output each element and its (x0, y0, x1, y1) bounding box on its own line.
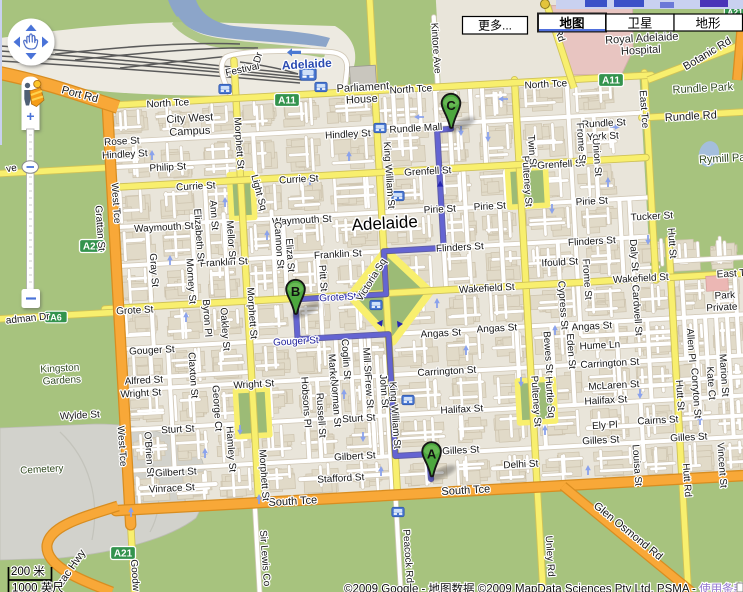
svg-text:Gardens: Gardens (42, 374, 81, 387)
svg-text:Currie St: Currie St (176, 180, 216, 193)
svg-text:Rose St: Rose St (104, 135, 140, 148)
svg-text:Ann St: Ann St (207, 200, 220, 231)
svg-text:Allen Pl: Allen Pl (684, 328, 697, 363)
svg-text:Pitt St: Pitt St (316, 265, 329, 293)
svg-text:卫星: 卫星 (627, 17, 652, 31)
svg-text:Angas St: Angas St (420, 327, 461, 340)
svg-text:Angas St: Angas St (571, 320, 612, 333)
svg-text:B: B (291, 284, 300, 299)
svg-text:Hutt St: Hutt St (665, 228, 678, 259)
svg-text:East Tce: East Tce (716, 267, 743, 280)
svg-text:Wright St: Wright St (120, 387, 162, 400)
svg-text:House: House (346, 93, 378, 107)
svg-text:200 米: 200 米 (11, 565, 45, 578)
svg-text:Pirie St: Pirie St (423, 204, 456, 217)
svg-text:A11: A11 (278, 96, 296, 107)
svg-text:Cairns St: Cairns St (637, 414, 679, 427)
svg-text:Park: Park (714, 290, 736, 302)
svg-text:Gilles St: Gilles St (670, 431, 708, 444)
svg-text:地图: 地图 (559, 16, 584, 31)
svg-text:Pirie St: Pirie St (473, 201, 506, 214)
svg-text:Hume Ln: Hume Ln (579, 339, 620, 352)
svg-text:Sturt St: Sturt St (161, 423, 195, 436)
svg-text:Angas St: Angas St (476, 322, 517, 335)
svg-text:Pirie St: Pirie St (575, 196, 608, 209)
svg-text:Mill St: Mill St (360, 347, 373, 375)
svg-text:Philip St: Philip St (149, 161, 186, 174)
svg-text:Campus: Campus (169, 125, 211, 139)
svg-text:A11: A11 (602, 76, 620, 87)
svg-text:A: A (427, 446, 437, 461)
svg-text:Hutt Rd: Hutt Rd (680, 463, 693, 498)
svg-text:Ifould St: Ifould St (541, 256, 578, 269)
svg-text:Adelaide: Adelaide (351, 212, 418, 235)
svg-text:Twin St: Twin St (525, 134, 538, 168)
svg-text:Sturt St: Sturt St (342, 412, 376, 425)
svg-text:地形: 地形 (695, 17, 721, 31)
svg-text:Delhi St: Delhi St (503, 458, 539, 471)
svg-text:Gilbert St: Gilbert St (334, 450, 376, 463)
svg-text:A21: A21 (114, 549, 133, 560)
svg-text:Wright St: Wright St (233, 378, 275, 391)
svg-text:Hutt St: Hutt St (673, 380, 686, 411)
svg-text:Alfred St: Alfred St (124, 374, 163, 387)
svg-text:Adelaide: Adelaide (281, 56, 332, 73)
svg-text:Currie St: Currie St (279, 173, 319, 186)
svg-text:Daly St: Daly St (627, 239, 640, 272)
svg-text:Grote St: Grote St (319, 291, 357, 304)
svg-text:+: + (26, 108, 34, 124)
svg-text:©2009 Google - 地图数据 ©2009 MapD: ©2009 Google - 地图数据 ©2009 MapData Scienc… (344, 582, 743, 592)
svg-text:A6: A6 (50, 312, 62, 322)
svg-text:Goodw: Goodw (128, 559, 141, 592)
svg-text:Grote St: Grote St (116, 304, 154, 317)
svg-text:Kate Ct: Kate Ct (704, 366, 717, 400)
svg-text:Gilbert St: Gilbert St (155, 466, 197, 479)
svg-text:Wylde St: Wylde St (60, 409, 101, 422)
svg-text:Private: Private (706, 302, 738, 315)
svg-text:Kingston: Kingston (40, 362, 79, 375)
svg-text:Gilles St: Gilles St (442, 444, 480, 457)
svg-text:更多...: 更多... (478, 19, 512, 33)
svg-text:Ely Pl: Ely Pl (592, 420, 618, 432)
svg-text:Gilles St: Gilles St (582, 434, 620, 447)
svg-text:1000 英尺: 1000 英尺 (12, 580, 64, 592)
svg-text:Hospital: Hospital (621, 44, 661, 58)
svg-text:Rymill Park: Rymill Park (699, 151, 743, 166)
svg-text:C: C (446, 98, 456, 113)
